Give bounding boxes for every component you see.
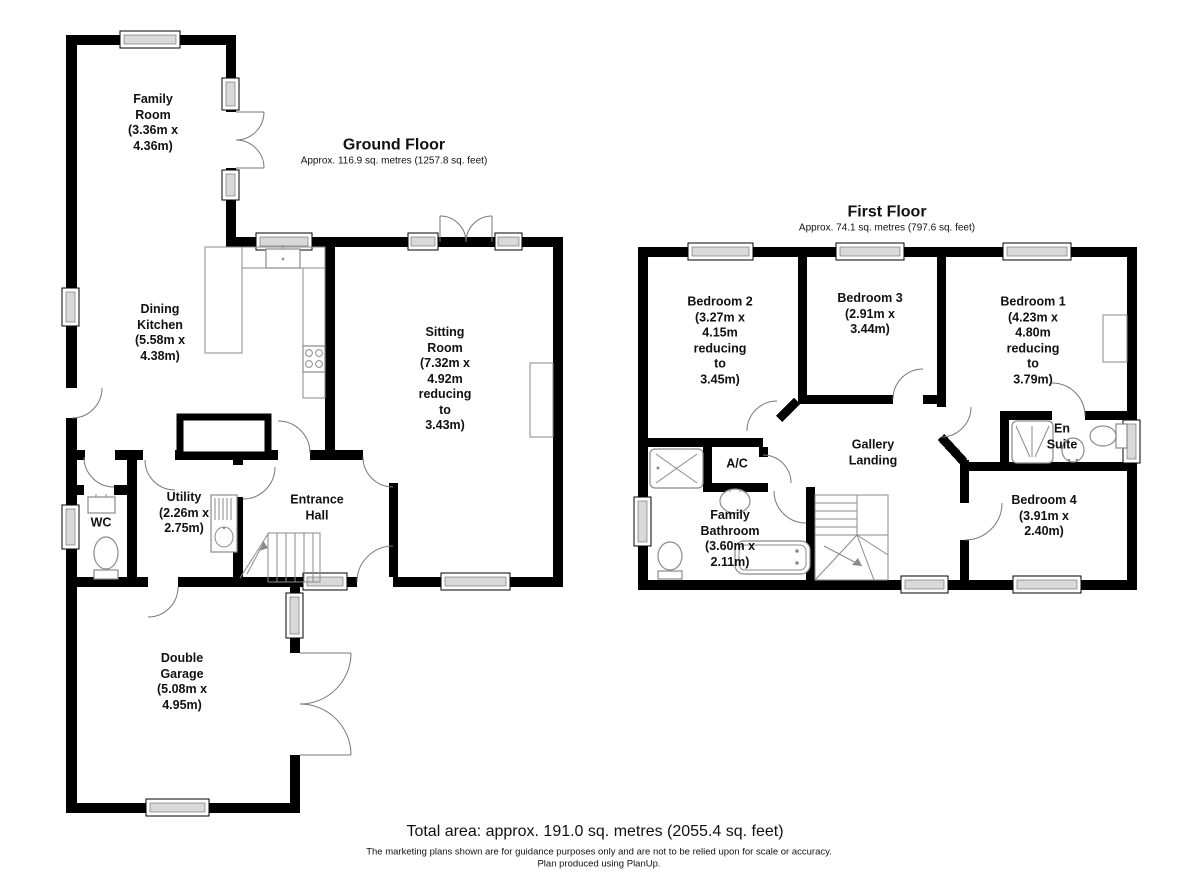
window-icon [688, 243, 753, 260]
room-label-entrance-hall: Entrance Hall [290, 493, 344, 524]
disclaimer-text: The marketing plans shown are for guidan… [366, 847, 832, 870]
room-label-dining-kitchen: Dining Kitchen (5.58m x 4.38m) [135, 302, 185, 364]
ground-floor-area-text: Approx. 116.9 sq. metres (1257.8 sq. fee… [301, 155, 488, 168]
room-label-sitting-room: Sitting Room (7.32m x 4.92m reducing to … [419, 325, 472, 434]
utility-appliances-icon [211, 495, 237, 552]
first-floor-area-text: Approx. 74.1 sq. metres (797.6 sq. feet) [799, 222, 975, 235]
total-area-text: Total area: approx. 191.0 sq. metres (20… [406, 823, 783, 841]
window-icon [408, 233, 438, 250]
wardrobe-icon [1103, 315, 1127, 362]
room-label-wc: WC [91, 515, 112, 531]
window-icon [146, 799, 209, 816]
shower-icon [650, 449, 703, 488]
room-label-bedroom-3: Bedroom 3 (2.91m x 3.44m) [837, 291, 902, 338]
kitchen-counter-icon [205, 245, 325, 398]
toilet-icon [1090, 424, 1127, 448]
floor-plan-page: Ground Floor Approx. 116.9 sq. metres (1… [0, 0, 1200, 873]
floor-plan-drawing [0, 0, 1200, 873]
window-icon [1003, 243, 1071, 260]
ground-floor-doors [72, 112, 492, 755]
window-icon [495, 233, 522, 250]
window-icon [62, 505, 79, 549]
window-icon [120, 31, 180, 48]
room-label-family-bathroom: Family Bathroom (3.60m x 2.11m) [700, 508, 759, 570]
ground-floor-title-text: Ground Floor [301, 137, 488, 155]
window-icon [222, 170, 239, 200]
window-icon [62, 288, 79, 326]
ground-floor-title: Ground Floor Approx. 116.9 sq. metres (1… [301, 137, 488, 168]
room-label-bedroom-1: Bedroom 1 (4.23m x 4.80m reducing to 3.7… [1000, 295, 1065, 388]
window-icon [441, 573, 510, 590]
sink-icon [88, 497, 115, 513]
wc-fixtures [88, 494, 118, 579]
room-label-ac: A/C [726, 456, 748, 472]
room-label-family-room: Family Room (3.36m x 4.36m) [128, 92, 178, 154]
window-icon [1013, 576, 1081, 593]
window-icon [222, 78, 239, 110]
toilet-icon [658, 542, 682, 579]
hall-cupboard [180, 417, 268, 455]
room-label-en-suite: En Suite [1047, 422, 1078, 453]
window-icon [634, 497, 651, 546]
first-floor-stairs-icon [815, 495, 888, 580]
room-label-double-garage: Double Garage (5.08m x 4.95m) [157, 651, 207, 713]
window-icon [901, 576, 948, 593]
toilet-icon [94, 537, 118, 579]
hob-icon [303, 346, 325, 372]
room-label-bedroom-2: Bedroom 2 (3.27m x 4.15m reducing to 3.4… [687, 295, 752, 388]
room-label-bedroom-4: Bedroom 4 (3.91m x 2.40m) [1011, 493, 1076, 540]
window-icon [836, 243, 904, 260]
window-icon [286, 593, 303, 638]
room-label-gallery-landing: Gallery Landing [849, 438, 898, 469]
room-label-utility: Utility (2.26m x 2.75m) [159, 490, 209, 537]
first-floor-title: First Floor Approx. 74.1 sq. metres (797… [799, 204, 975, 235]
chimney-breast-icon [530, 363, 553, 437]
first-floor-title-text: First Floor [799, 204, 975, 222]
